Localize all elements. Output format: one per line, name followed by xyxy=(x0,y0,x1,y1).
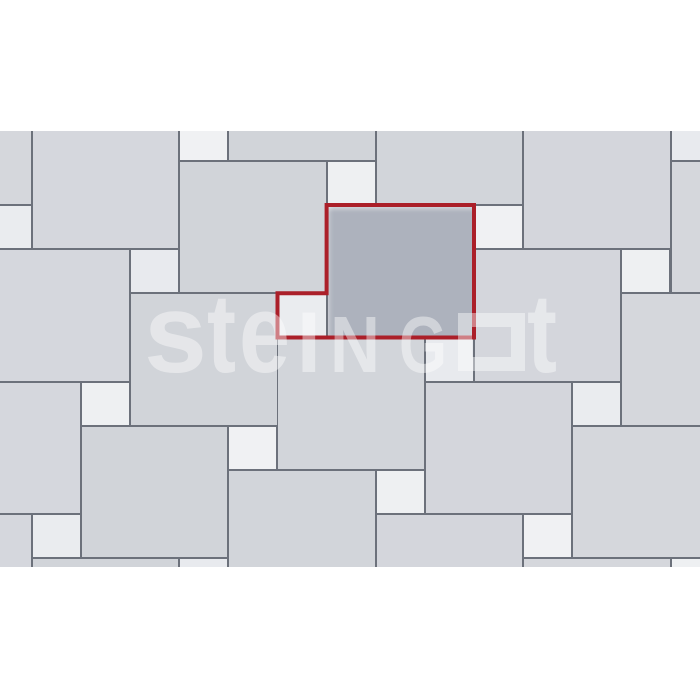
svg-text:N: N xyxy=(330,300,380,389)
svg-text:s: s xyxy=(144,270,207,396)
svg-text:ı: ı xyxy=(296,270,322,396)
svg-text:G: G xyxy=(399,300,447,389)
svg-text:t: t xyxy=(527,270,557,396)
svg-text:t: t xyxy=(207,270,236,396)
svg-text:e: e xyxy=(239,270,290,396)
